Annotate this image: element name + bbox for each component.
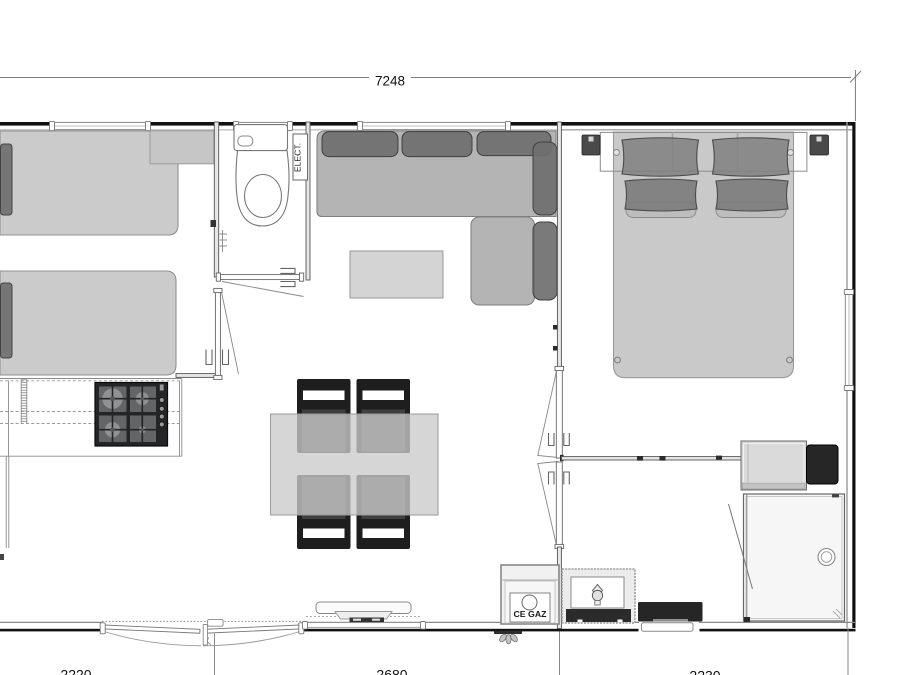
svg-text:7248: 7248 [375,74,405,89]
svg-text:2220: 2220 [60,667,91,675]
svg-text:ELECT.: ELECT. [293,143,303,172]
svg-text:2680: 2680 [376,667,407,675]
svg-text:2230: 2230 [689,668,720,675]
svg-text:CE GAZ: CE GAZ [514,610,547,619]
